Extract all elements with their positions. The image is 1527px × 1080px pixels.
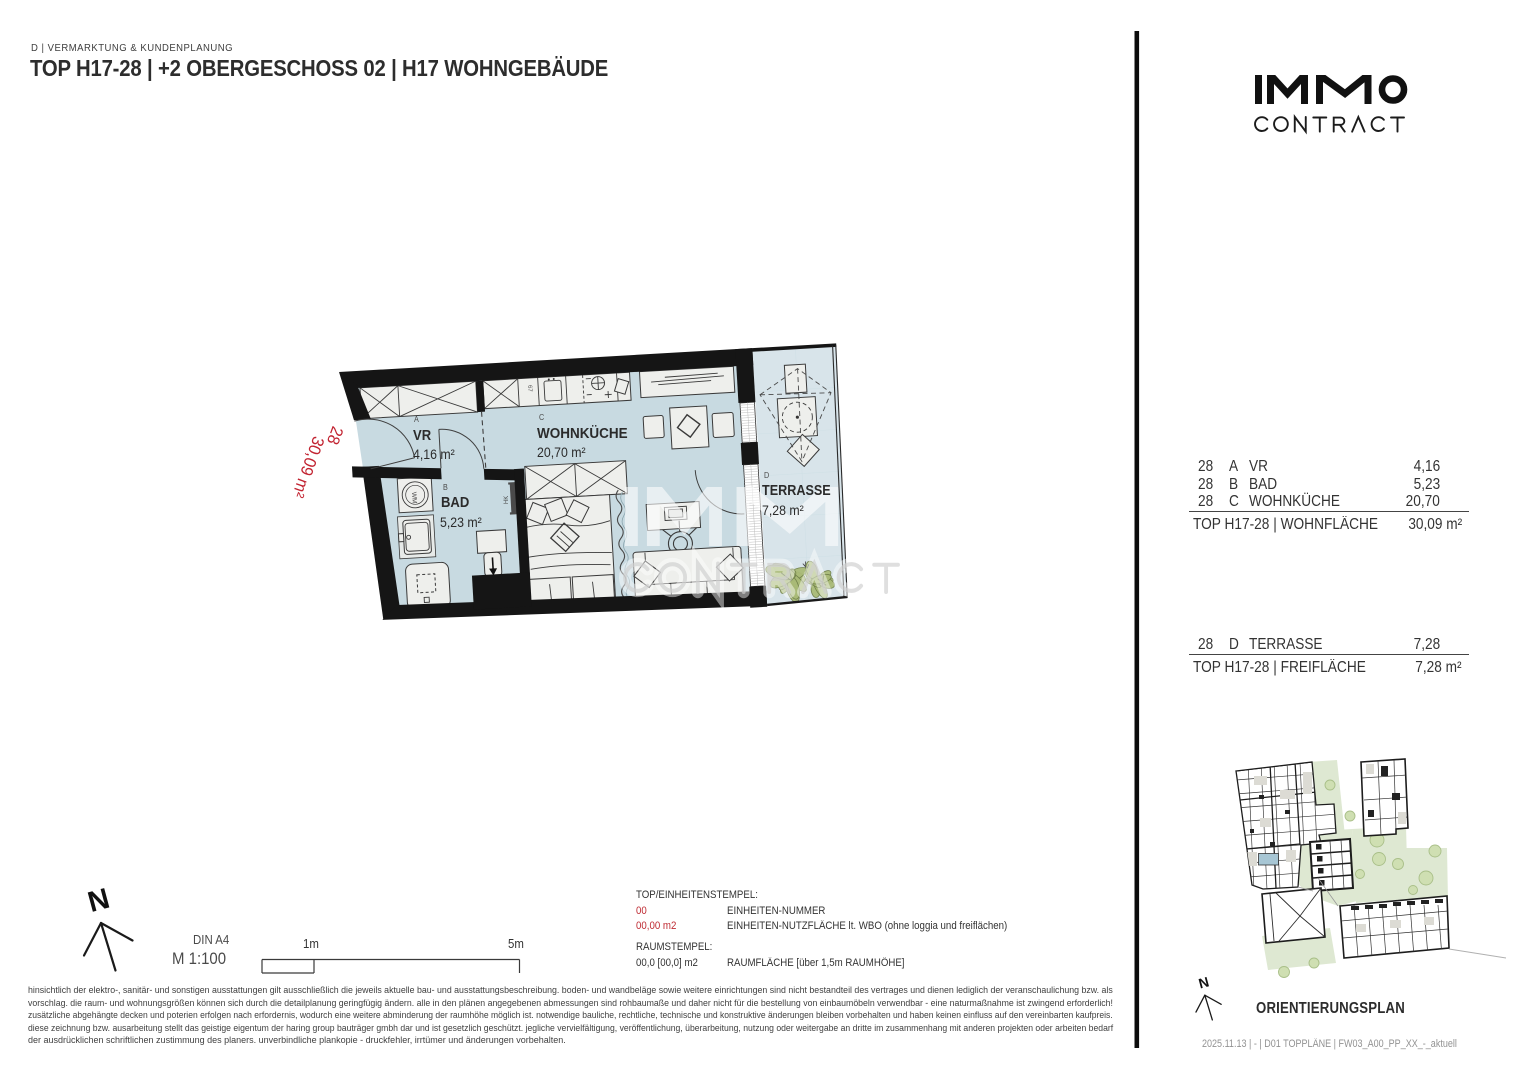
svg-text:67: 67 [526, 385, 532, 393]
svg-text:WM: WM [410, 492, 418, 504]
